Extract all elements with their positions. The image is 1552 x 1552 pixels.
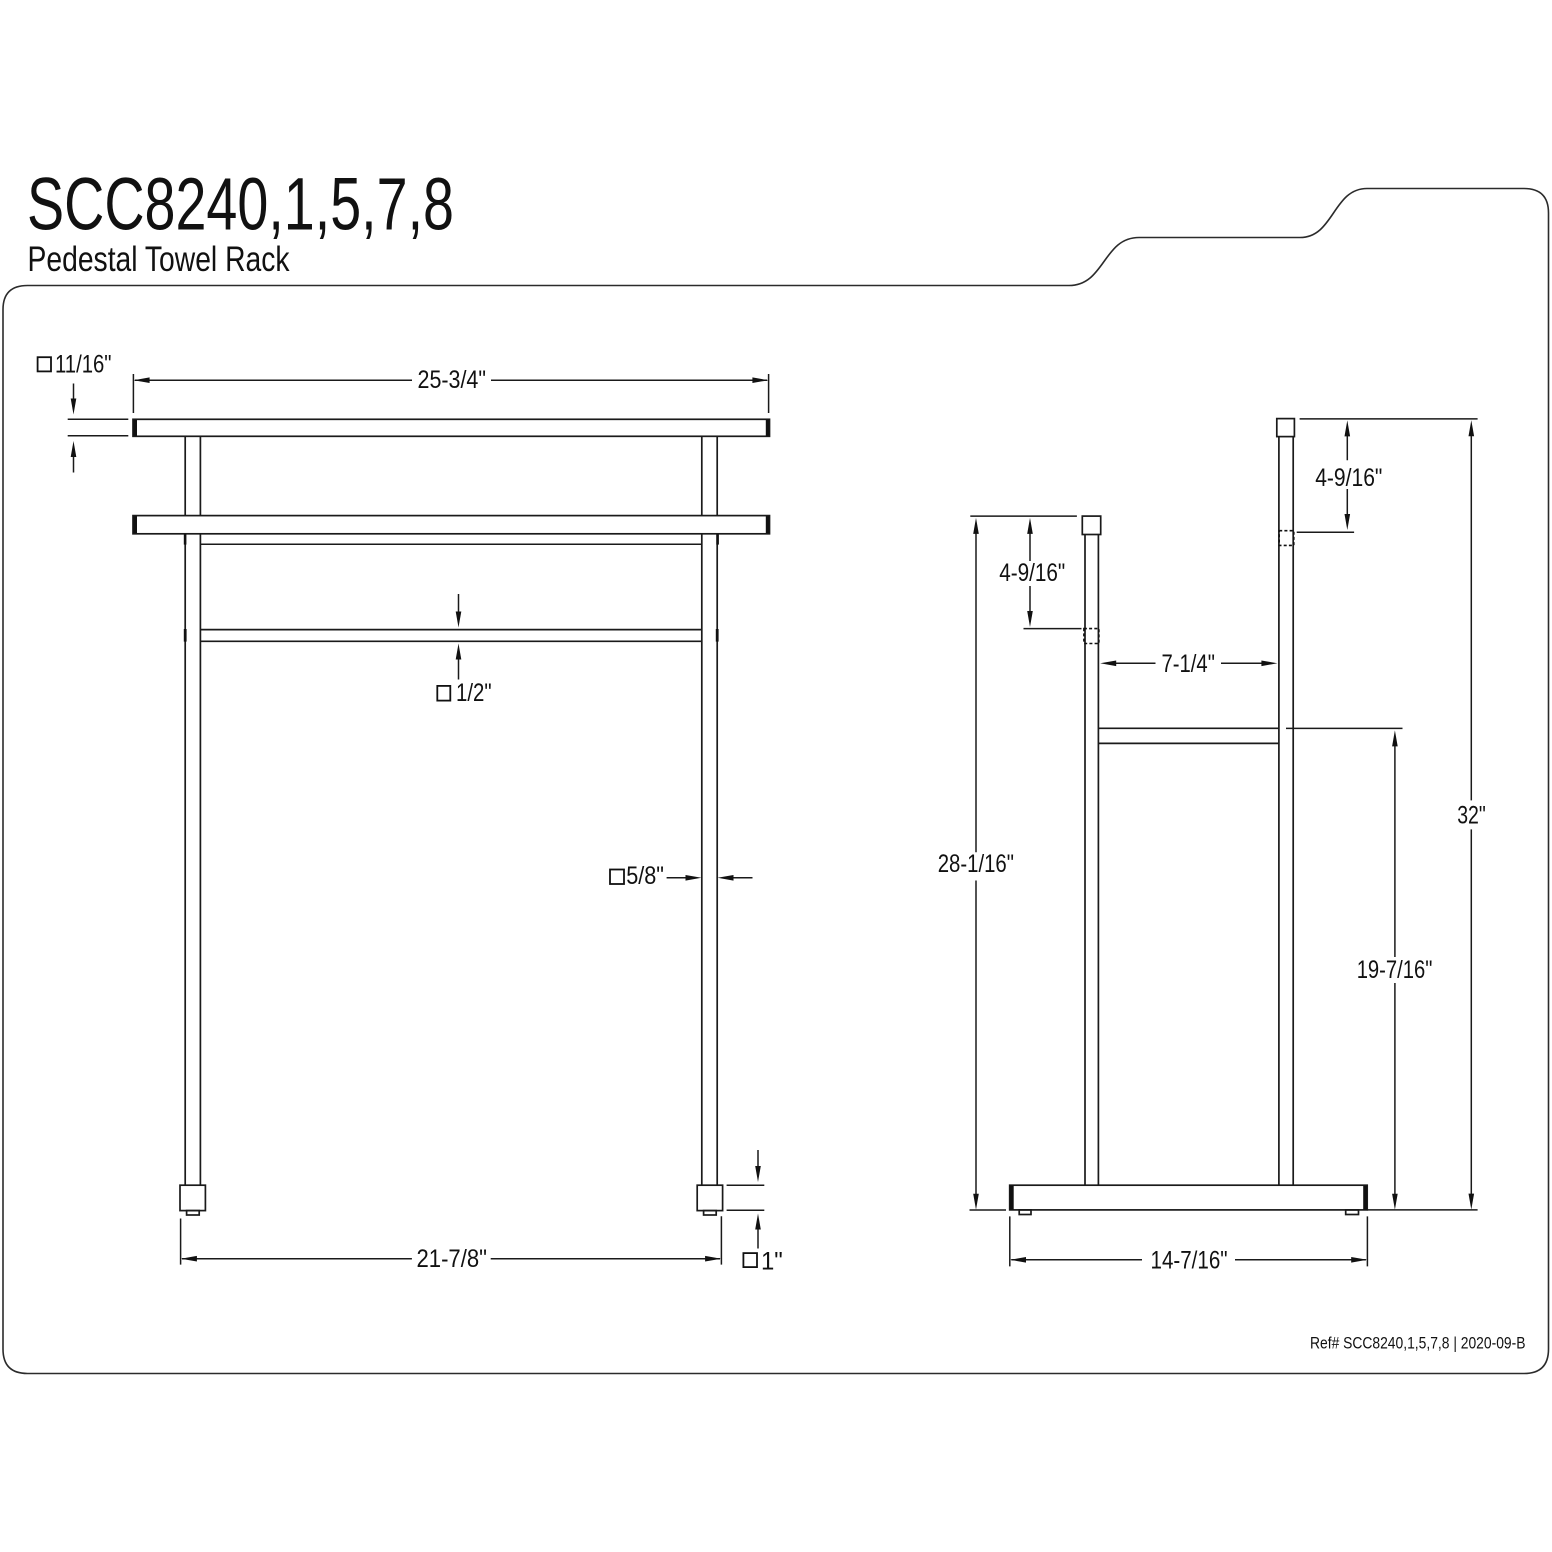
svg-text:SCC8240,1,5,7,8: SCC8240,1,5,7,8 [27, 163, 454, 246]
svg-text:21-7/8": 21-7/8" [417, 1245, 488, 1273]
svg-text:7-1/4": 7-1/4" [1162, 650, 1215, 678]
svg-text:14-7/16": 14-7/16" [1151, 1246, 1228, 1274]
svg-text:19-7/16": 19-7/16" [1357, 956, 1433, 984]
svg-text:25-3/4": 25-3/4" [418, 366, 487, 394]
svg-text:Ref# SCC8240,1,5,7,8 | 2020-09: Ref# SCC8240,1,5,7,8 | 2020-09-B [1310, 1333, 1526, 1352]
svg-text:4-9/16": 4-9/16" [1315, 464, 1382, 492]
svg-text:1/2": 1/2" [456, 679, 492, 707]
svg-text:1": 1" [761, 1248, 783, 1276]
svg-text:11/16": 11/16" [55, 351, 112, 379]
svg-text:28-1/16": 28-1/16" [938, 850, 1014, 878]
svg-text:32": 32" [1457, 801, 1486, 829]
svg-text:5/8": 5/8" [626, 862, 664, 890]
svg-text:Pedestal Towel Rack: Pedestal Towel Rack [28, 240, 290, 279]
svg-text:4-9/16": 4-9/16" [999, 559, 1065, 587]
